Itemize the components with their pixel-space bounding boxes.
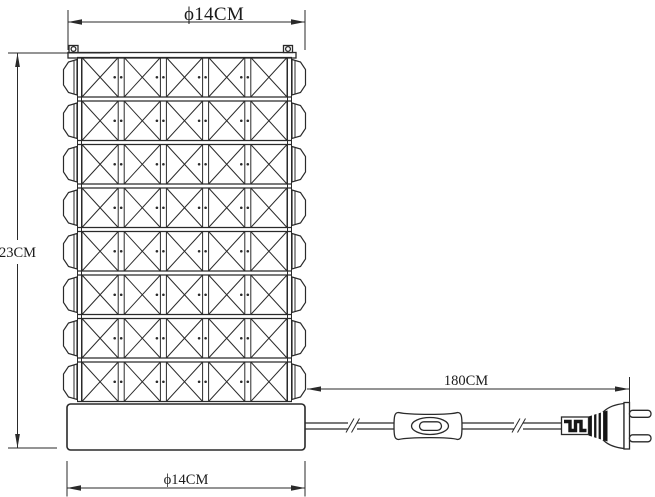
- top-diameter-label: ϕ14CM: [184, 4, 244, 25]
- power-plug: [562, 403, 652, 450]
- lamp-technical-drawing: ϕ14CM 23CM: [0, 0, 655, 497]
- base-body: [67, 404, 305, 450]
- plug-pin-bottom: [630, 435, 652, 442]
- plug-pin-top: [630, 410, 652, 417]
- lamp-top-bar: [68, 46, 296, 59]
- arrowhead-right: [291, 19, 305, 24]
- arrowhead-right: [615, 386, 629, 391]
- inline-switch: [394, 413, 462, 440]
- switch-bezel: [412, 418, 449, 435]
- arrowhead-right: [291, 485, 305, 490]
- arrowhead-down: [15, 434, 20, 448]
- finial-right-screw: [286, 47, 291, 52]
- arrowhead-left: [307, 386, 321, 391]
- base-diameter-label: ϕ14CM: [164, 472, 209, 488]
- dim-top-diameter: ϕ14CM: [68, 4, 305, 50]
- arrowhead-left: [68, 19, 82, 24]
- drawing-canvas: ϕ14CM 23CM: [0, 0, 655, 497]
- dim-bottom-diameter: ϕ14CM: [67, 461, 305, 497]
- plug-face-plate: [624, 403, 630, 450]
- arrowhead-up: [15, 53, 20, 67]
- lamp-base: [67, 404, 305, 450]
- height-label: 23CM: [0, 245, 36, 261]
- finial-left-screw: [71, 47, 76, 52]
- cord-length-label: 180CM: [444, 373, 488, 389]
- arrowhead-left: [67, 485, 81, 490]
- lamp-shade-grid: [64, 58, 306, 402]
- dim-cord-length: 180CM: [307, 373, 630, 402]
